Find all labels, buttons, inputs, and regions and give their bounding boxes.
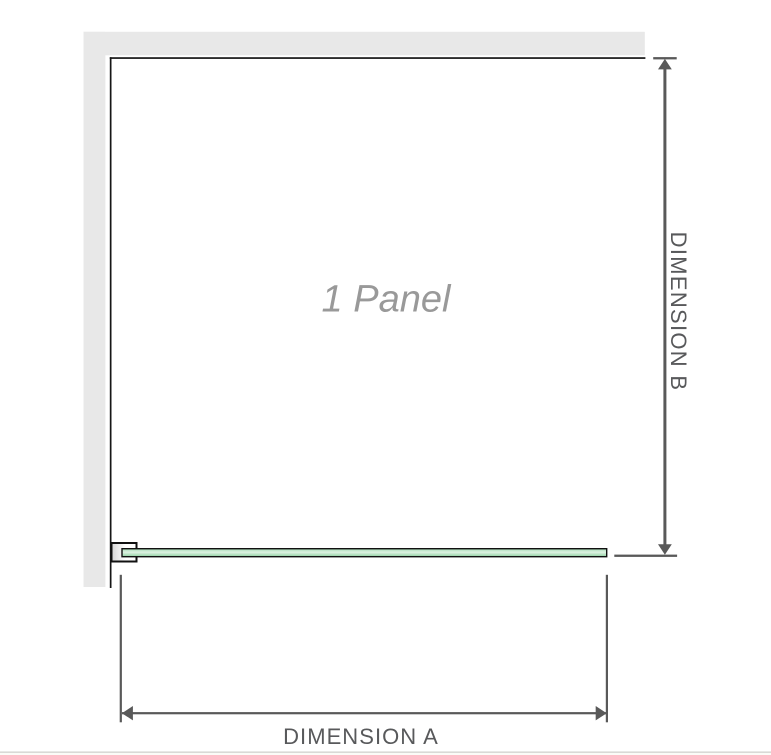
svg-text:1 Panel: 1 Panel — [322, 278, 452, 320]
svg-text:DIMENSION A: DIMENSION A — [283, 724, 439, 749]
svg-text:DIMENSION B: DIMENSION B — [666, 232, 691, 392]
